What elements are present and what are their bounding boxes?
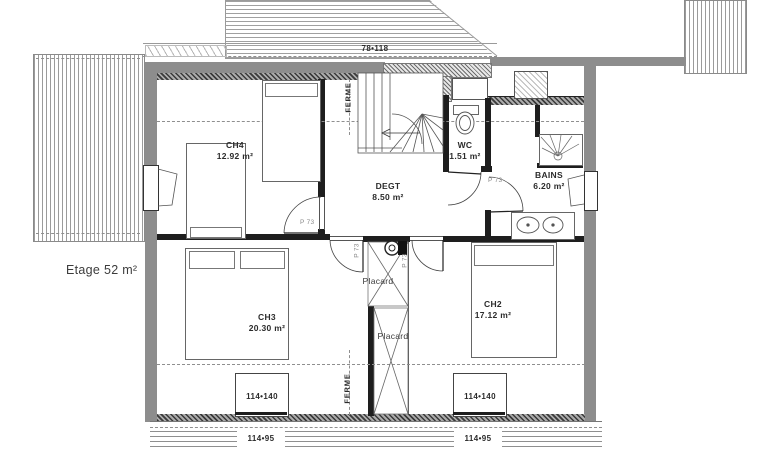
bed-ch3-pillow-left: [189, 251, 235, 269]
room-ch4-name: CH4: [203, 140, 267, 151]
room-wc-area: 1.51 m²: [433, 151, 497, 162]
window-sub-dim-left: 114•95: [237, 434, 285, 443]
window-left-flap: [158, 169, 177, 206]
window-bains-wall: [584, 171, 598, 211]
room-ch2-name: CH2: [461, 299, 525, 310]
wall-left: [145, 62, 157, 422]
threshold-ch4-b: [324, 197, 325, 230]
threshold-ch2-b: [410, 240, 443, 241]
window-bottom-right-glazing: [453, 412, 505, 415]
window-bottom-left: 114•140: [235, 373, 289, 417]
placard-upper-label: Placard: [352, 276, 404, 287]
wall-placard-lower-left: [368, 306, 374, 416]
velux-bains: [514, 71, 548, 99]
shower-tray: [539, 134, 583, 166]
floor-plan: 114•140 114•140 114•95 114•95: [0, 0, 760, 472]
window-bottom-right: 114•140: [453, 373, 507, 417]
door-ch2: [412, 240, 443, 271]
roof-window-dim: 78•118: [352, 44, 398, 53]
bed-ch4-top-pillow: [265, 83, 318, 97]
room-label-ch2: CH2 17.12 m²: [461, 299, 525, 321]
room-ch4-area: 12.92 m²: [203, 151, 267, 162]
bed-ch3-pillow-right: [240, 251, 285, 269]
wall-bains-left-lower: [485, 210, 491, 238]
roof-top-right-hatch: [684, 0, 747, 74]
room-bains-name: BAINS: [517, 170, 581, 181]
eave-line: [143, 43, 497, 44]
bed-ch2-pillow: [474, 245, 554, 266]
ferme-label-top: FERME: [344, 77, 353, 119]
window-sub-dim-right: 114•95: [454, 434, 502, 443]
balcony-stripes: [150, 431, 602, 448]
room-label-ch4: CH4 12.92 m²: [203, 140, 267, 162]
threshold-ch4-a: [319, 197, 320, 230]
placard-lower-label: Placard: [367, 331, 419, 342]
room-label-bains: BAINS 6.20 m²: [517, 170, 581, 192]
room-ch3-area: 20.30 m²: [235, 323, 299, 334]
room-label-degt: DEGT 8.50 m²: [356, 181, 420, 203]
roof-left-hidden-line-top: [36, 58, 140, 59]
vanity-double-sink: [511, 212, 575, 240]
room-degt-name: DEGT: [356, 181, 420, 192]
bed-ch4-left-pillow: [190, 227, 242, 238]
door-label-ch2: P 73: [402, 251, 409, 271]
room-wc-name: WC: [433, 140, 497, 151]
room-label-ch3: CH3 20.30 m²: [235, 312, 299, 334]
room-degt-area: 8.50 m²: [356, 192, 420, 203]
stair-landing-box: [399, 76, 438, 99]
window-bottom-left-glazing: [235, 412, 287, 415]
room-bains-area: 6.20 m²: [517, 181, 581, 192]
eave-tick-band: [145, 45, 227, 57]
wall-right: [584, 57, 596, 422]
placard-lower-x: [374, 308, 408, 414]
floor-title: Etage 52 m²: [66, 263, 137, 277]
door-ch4: [284, 197, 321, 233]
room-ch2-area: 17.12 m²: [461, 310, 525, 321]
window-left-wall: [143, 165, 159, 211]
toilet-bowl: [456, 112, 474, 134]
wall-placard-top: [363, 236, 410, 242]
toilet-cistern: [453, 105, 479, 115]
roof-left-hatch: [33, 54, 145, 242]
threshold-ch2-a: [410, 236, 443, 237]
axis-line-upper: [157, 121, 584, 122]
room-ch3-name: CH3: [235, 312, 299, 323]
ferme-label-bottom: FERME: [343, 368, 352, 410]
door-label-wc: P 73: [488, 177, 502, 184]
wall-top-main: [145, 62, 385, 73]
stair-bay-left: [383, 76, 399, 100]
wall-wc-corner-stub: [481, 166, 492, 172]
room-label-wc: WC 1.51 m²: [433, 140, 497, 162]
door-label-ch3: P 73: [354, 241, 361, 261]
window-bottom-right-dim: 114•140: [454, 392, 506, 401]
balcony-edge-line: [150, 421, 602, 422]
window-bottom-left-dim: 114•140: [236, 392, 288, 401]
roof-left-hidden-line-bottom: [36, 233, 140, 234]
threshold-ch3-a: [330, 236, 363, 237]
door-wc: [448, 172, 481, 205]
wc-shelf-box: [452, 78, 488, 100]
axis-line-lower: [157, 364, 585, 365]
door-label-ch4: P 73: [300, 219, 314, 226]
balcony-dashed-line: [150, 427, 602, 428]
